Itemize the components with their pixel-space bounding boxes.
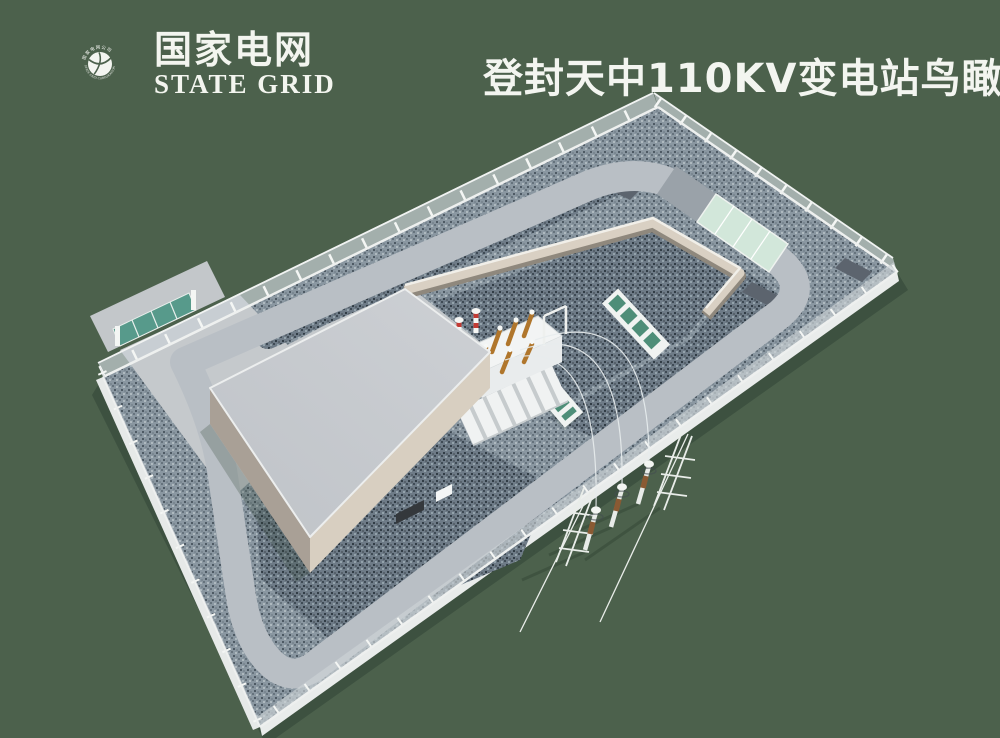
substation-aerial-rendering	[0, 0, 1000, 738]
